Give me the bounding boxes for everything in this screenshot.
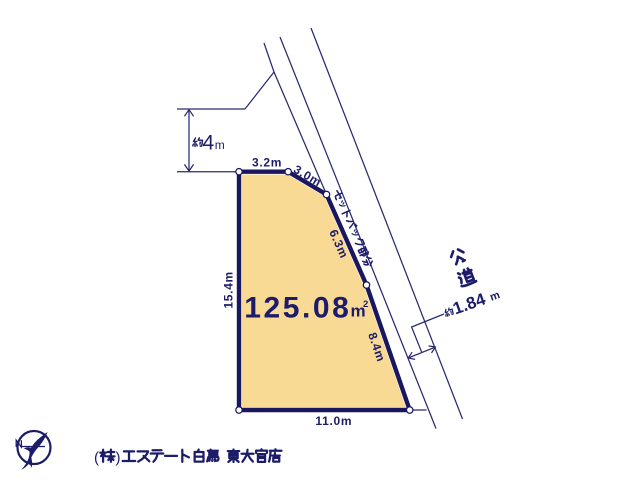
svg-text:(: ( (94, 450, 99, 467)
svg-text:15.4m: 15.4m (221, 271, 235, 309)
svg-text:4: 4 (203, 132, 215, 155)
svg-text:1.84: 1.84 (450, 289, 488, 318)
svg-text:3.2m: 3.2m (252, 156, 282, 170)
svg-text:m: m (215, 138, 225, 152)
svg-text:11.0m: 11.0m (315, 414, 352, 428)
svg-text:2: 2 (363, 299, 368, 310)
svg-text:m: m (488, 289, 501, 304)
svg-text:): ) (116, 450, 121, 467)
svg-text:125.08: 125.08 (244, 291, 351, 324)
